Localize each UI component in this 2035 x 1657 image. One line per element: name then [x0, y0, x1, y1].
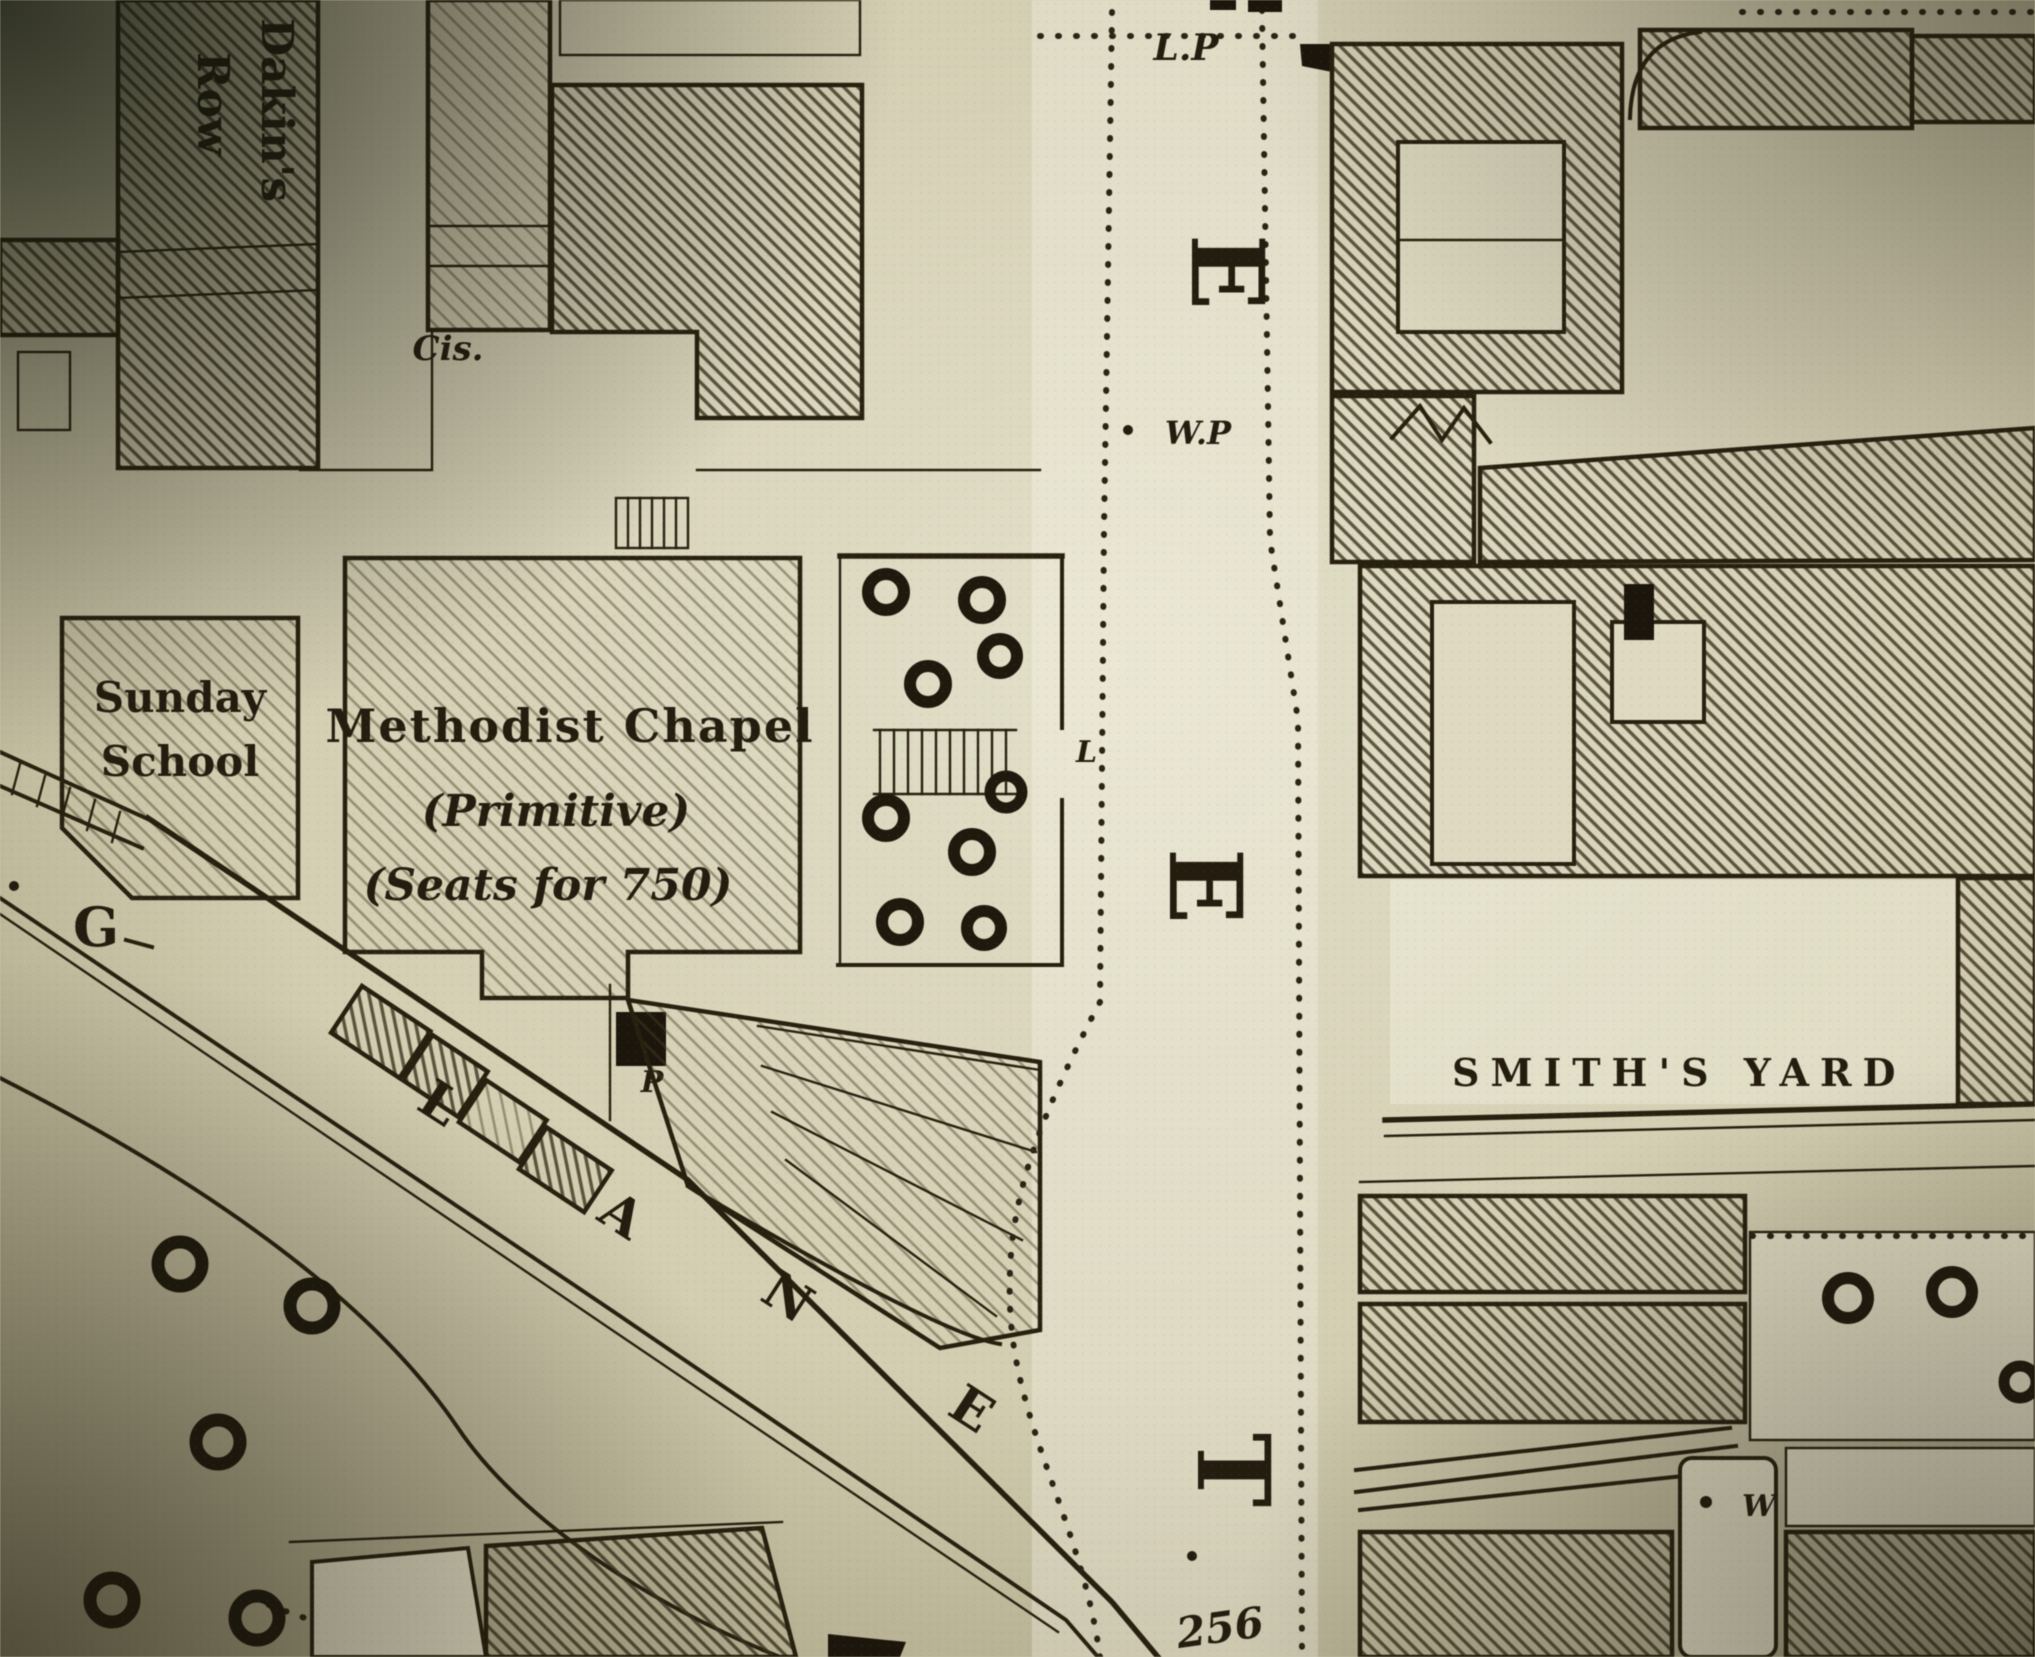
photo-shadow-topleft — [0, 0, 900, 760]
map-photo: Dakin's Row Cis. Sunday School Methodist… — [0, 0, 2035, 1657]
photo-shadow-bottomleft — [0, 957, 800, 1657]
photo-shadow-topright — [1235, 0, 2035, 600]
photo-shadow-bottomright — [1235, 1057, 2035, 1657]
historic-map-svg: Dakin's Row Cis. Sunday School Methodist… — [0, 0, 2035, 1657]
